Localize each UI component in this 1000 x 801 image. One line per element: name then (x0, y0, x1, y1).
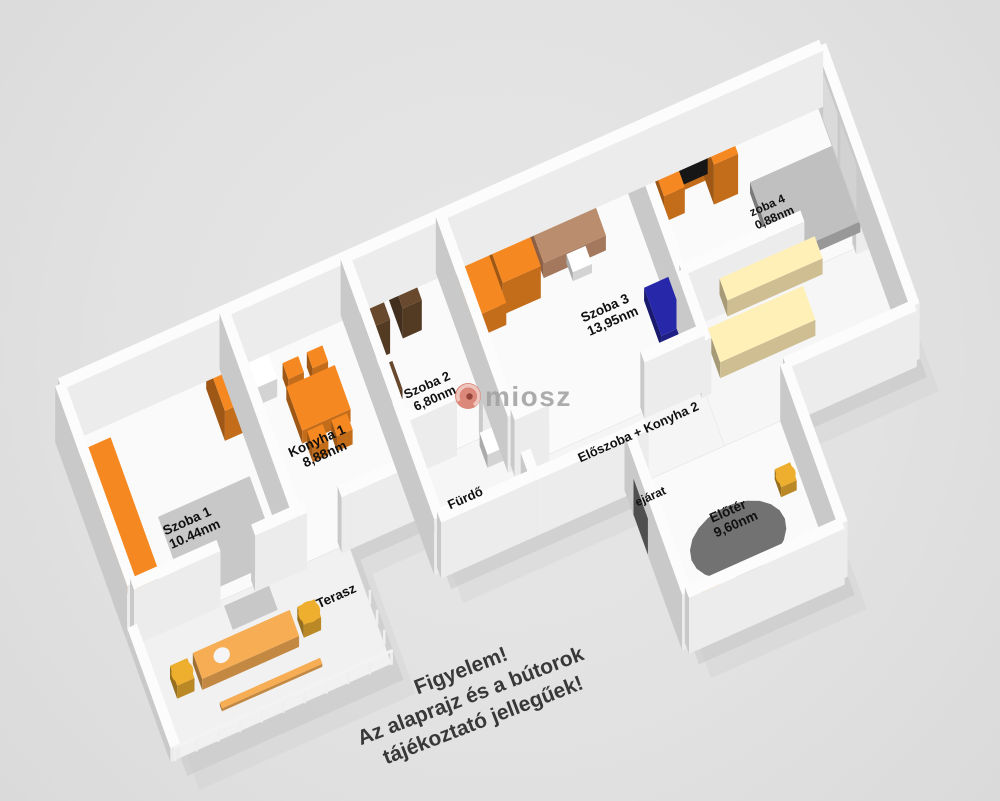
wall-left (251, 525, 255, 592)
logo-dot (466, 393, 472, 399)
wall-front (298, 513, 307, 573)
watermark-swirl-logo-icon (455, 383, 481, 409)
watermark: miosz (455, 381, 572, 412)
floorplan-3d: Szoba 1 10.44nm Konyha 1 8,88nm Szoba 2 … (0, 0, 1000, 801)
wall-left (511, 409, 515, 476)
wall-left (685, 587, 689, 654)
wall-left (338, 486, 342, 553)
wall-left (437, 511, 441, 578)
wall-left (640, 351, 644, 418)
wall-front (342, 493, 351, 553)
watermark-brand-text: miosz (485, 381, 572, 412)
floorplan-canvas: Szoba 1 10.44nm Konyha 1 8,88nm Szoba 2 … (0, 0, 1000, 801)
